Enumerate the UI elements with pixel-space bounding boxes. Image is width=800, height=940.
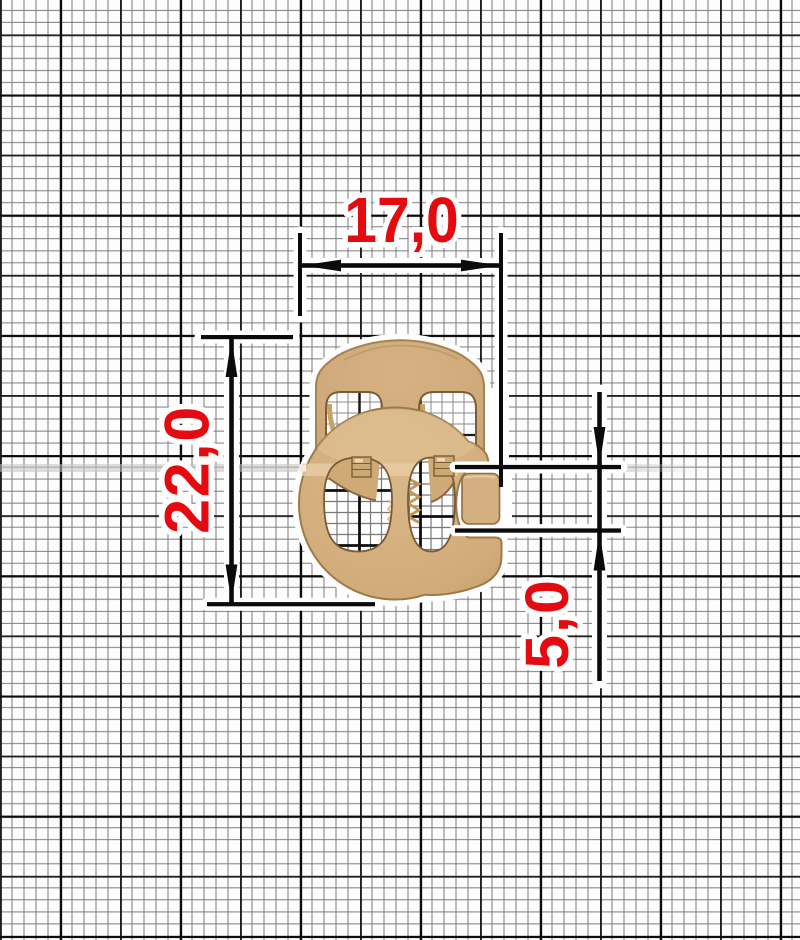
svg-text:22,0: 22,0 bbox=[153, 405, 223, 534]
svg-text:17,0: 17,0 bbox=[344, 185, 459, 257]
svg-text:5,0: 5,0 bbox=[513, 578, 581, 669]
